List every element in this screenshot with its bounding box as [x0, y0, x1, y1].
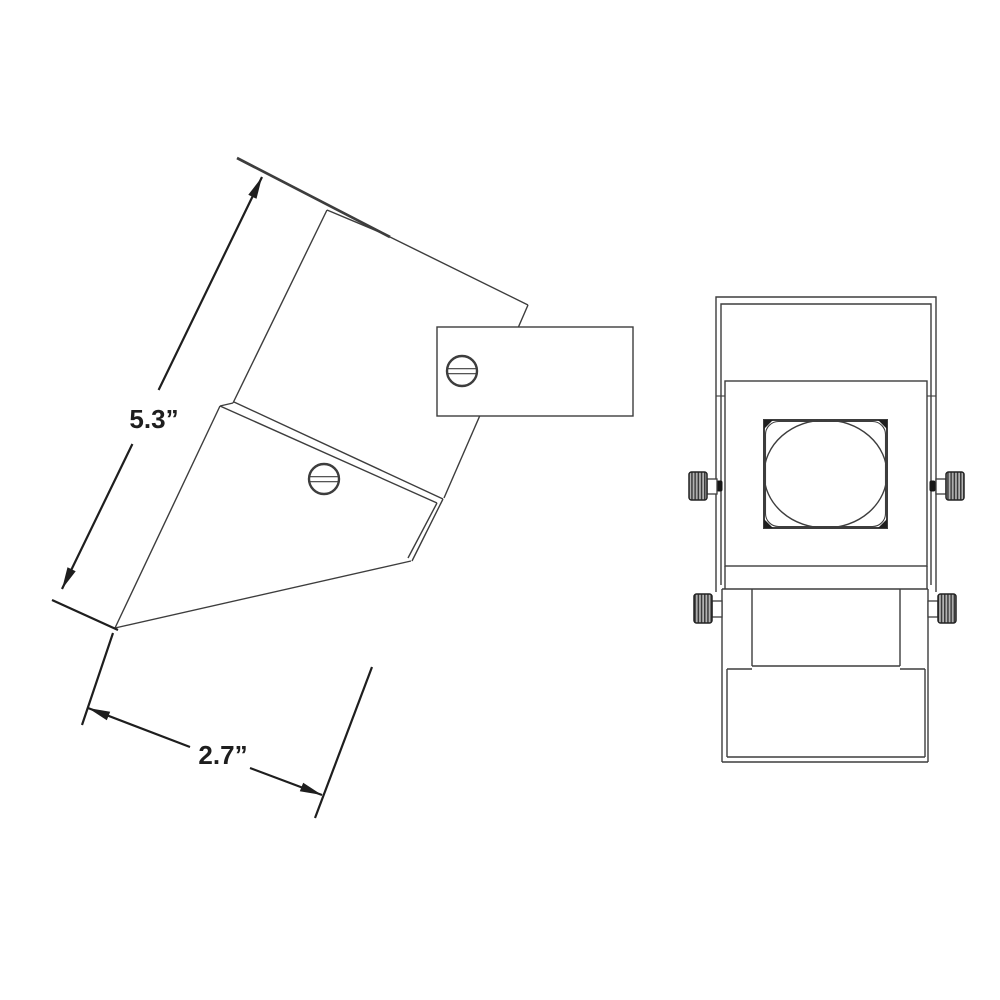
thumbscrew-lower-left [694, 594, 722, 623]
drawing-canvas: 5.3” 2.7” [0, 0, 1000, 1000]
arrowhead-icon [300, 783, 322, 795]
hood-front-edge [115, 406, 220, 628]
arrowhead-icon [62, 567, 76, 589]
arrowhead-icon [88, 708, 110, 720]
front-view [689, 297, 964, 762]
extension-line [315, 667, 372, 818]
bracket-screw-icon [447, 356, 477, 386]
face-plate [725, 381, 927, 566]
dimension-length-label: 5.3” [129, 404, 178, 434]
top-edge-extension [237, 158, 390, 237]
knurled-knob-icon [694, 594, 712, 623]
thumbscrew-upper-right [930, 472, 965, 500]
extension-line [52, 600, 118, 630]
dimension-line [62, 444, 132, 589]
knob-collar [928, 601, 938, 617]
knurled-knob-icon [938, 594, 956, 623]
pivot-bolt-icon [930, 481, 936, 492]
hood-chamfer-outer [412, 499, 443, 561]
top-face-sliver [327, 210, 389, 236]
hood-chamfer-inner [408, 503, 437, 558]
top-edge [390, 237, 528, 305]
lower-body [722, 566, 928, 762]
lens-face-edge [115, 561, 411, 628]
knob-collar [936, 479, 946, 494]
knob-collar [707, 479, 717, 494]
side-view: 5.3” 2.7” [52, 158, 633, 818]
dimension-width-label: 2.7” [198, 740, 247, 770]
dimension-line [159, 177, 262, 390]
thumbscrew-upper-left [689, 472, 723, 500]
knurled-knob-icon [689, 472, 707, 500]
arrowhead-icon [248, 177, 262, 199]
screw-head [447, 356, 477, 386]
dimension-width: 2.7” [82, 633, 372, 818]
screw-head [309, 464, 339, 494]
hood-screw-icon [309, 464, 339, 494]
hood-step [220, 403, 233, 406]
knurled-knob-icon [946, 472, 964, 500]
knob-collar [712, 601, 722, 617]
thumbscrew-lower-right [928, 594, 956, 623]
front-edge-upper [233, 210, 327, 403]
technical-drawing: 5.3” 2.7” [0, 0, 1000, 1000]
